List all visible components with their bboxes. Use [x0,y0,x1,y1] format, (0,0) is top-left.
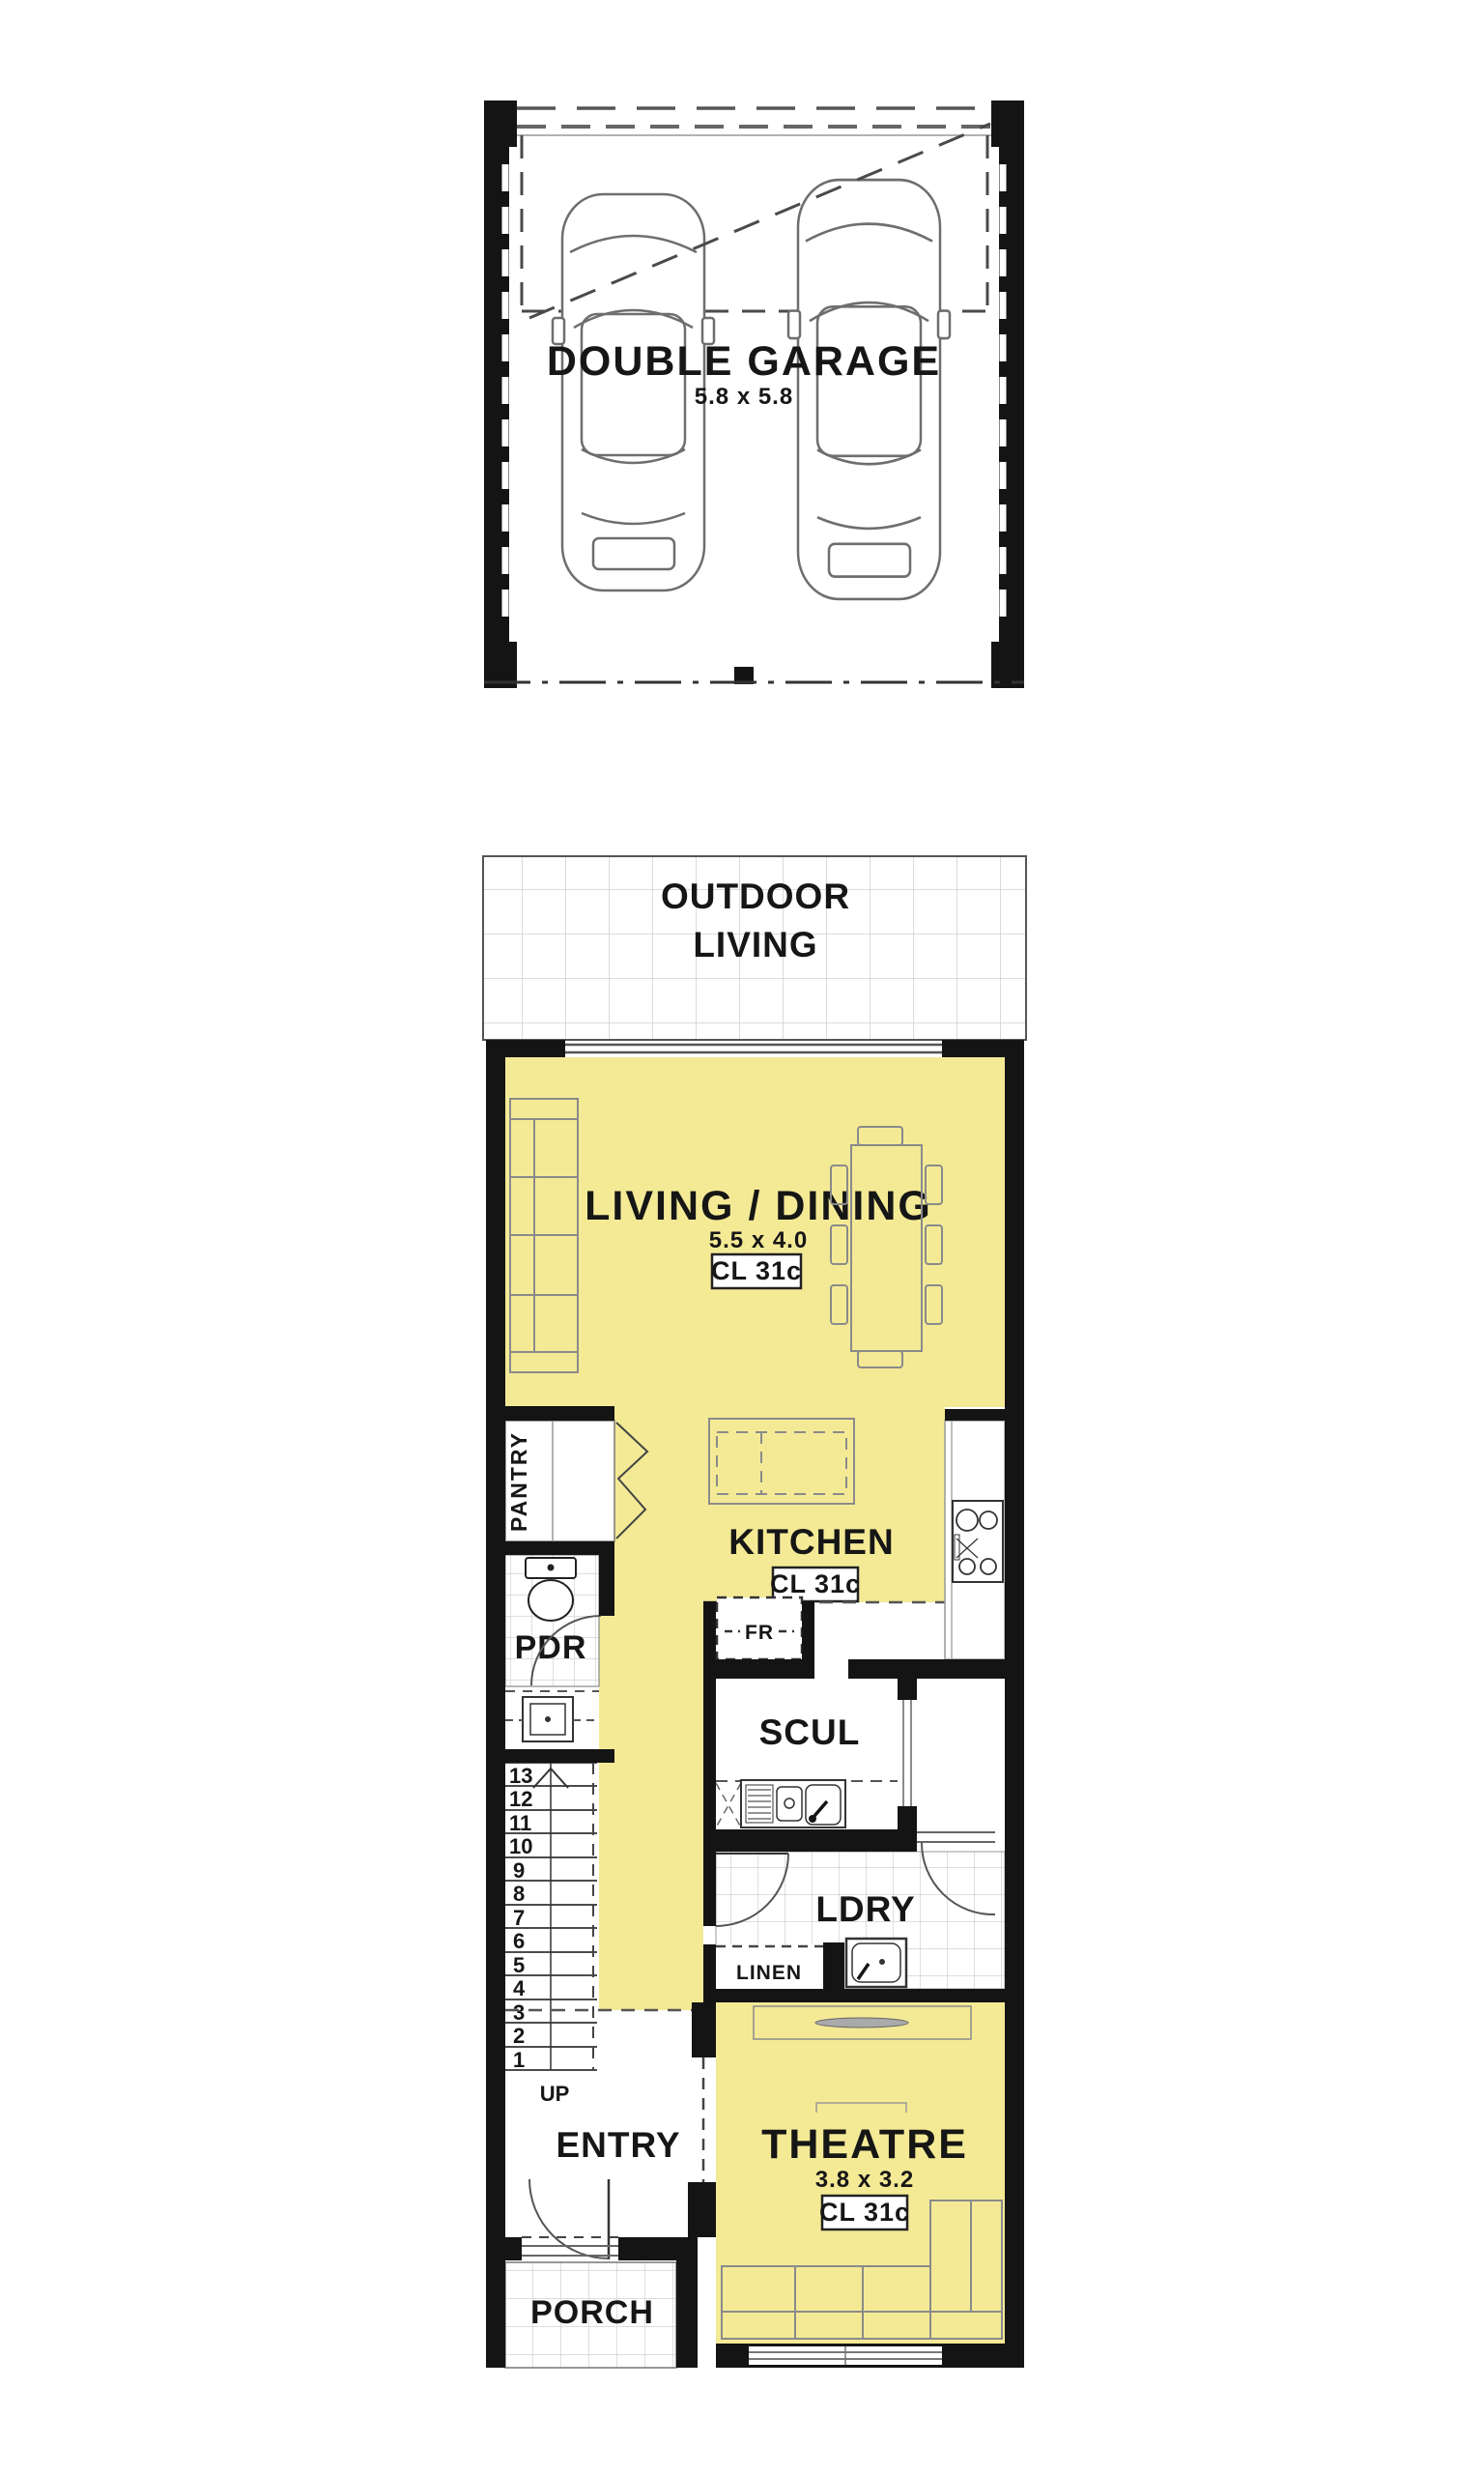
stairs-up-label: UP [540,2082,570,2106]
porch-label: PORCH [530,2294,654,2331]
entry-label: ENTRY [556,2125,680,2165]
room-scullery: SCUL [716,1712,898,1827]
living-dining-ceiling-label: CL 31c [711,1256,802,1285]
fridge-label: FR [745,1622,774,1644]
room-outdoor-living: OUTDOOR LIVING [483,856,1026,1040]
garage-label: DOUBLE GARAGE [547,338,941,385]
outdoor-living-label-line2: LIVING [693,925,817,964]
staircase: 13 12 11 10 9 8 7 6 5 4 3 2 1 UP [505,1763,597,2106]
laundry-tub-icon [846,1939,906,1987]
garage-dims: 5.8 x 5.8 [695,384,793,410]
kitchen-label: KITCHEN [728,1522,894,1562]
stair-tread-numbers: 13 12 11 10 9 8 7 6 5 4 3 2 1 [509,1764,532,2072]
theatre-dims: 3.8 x 3.2 [815,2167,914,2193]
car-top-view-icon [788,180,950,599]
pantry-label: PANTRY [506,1431,531,1532]
linen-label: LINEN [736,1962,802,1984]
floor-plan-page: DOUBLE GARAGE 5.8 x 5.8 OUTDOOR LIVING L… [0,0,1484,2474]
svg-text:6: 6 [513,1929,525,1953]
svg-text:13: 13 [509,1764,532,1788]
living-dining-label: LIVING / DINING [585,1183,932,1229]
svg-text:12: 12 [509,1787,532,1811]
laundry-label: LDRY [815,1889,915,1929]
svg-text:8: 8 [513,1882,525,1906]
car-top-view-icon [553,194,714,590]
svg-text:1: 1 [513,2048,525,2072]
svg-text:11: 11 [509,1811,531,1835]
powder-label: PDR [515,1629,587,1666]
scullery-label: SCUL [759,1712,861,1752]
vanity-basin-icon [523,1697,573,1741]
svg-text:9: 9 [513,1858,525,1883]
svg-text:4: 4 [513,1976,526,2000]
living-sliding-door [565,1045,942,1052]
svg-text:7: 7 [513,1906,525,1930]
cooktop-icon [953,1501,1003,1582]
double-sink-icon [741,1780,845,1827]
windows [898,1700,917,1806]
toilet-icon [526,1558,576,1621]
theatre-ceiling-label: CL 31c [819,2198,910,2227]
svg-text:10: 10 [509,1834,532,1858]
theatre-window [749,2346,942,2365]
svg-text:2: 2 [513,2024,525,2048]
living-dining-dims: 5.5 x 4.0 [709,1227,808,1253]
room-laundry: LDRY LINEN [716,1832,1005,1989]
outdoor-living-label-line1: OUTDOOR [661,877,850,916]
kitchen-ceiling-label: CL 31c [770,1569,861,1598]
svg-text:5: 5 [513,1953,525,1977]
tv-icon [815,2018,908,2028]
floor-plan-drawing: DOUBLE GARAGE 5.8 x 5.8 OUTDOOR LIVING L… [0,0,1484,2474]
room-garage: DOUBLE GARAGE 5.8 x 5.8 [484,101,1024,688]
theatre-label: THEATRE [761,2121,968,2168]
room-powder: PDR [505,1555,601,1741]
svg-text:3: 3 [513,2000,525,2025]
room-porch: PORCH [505,2262,676,2368]
